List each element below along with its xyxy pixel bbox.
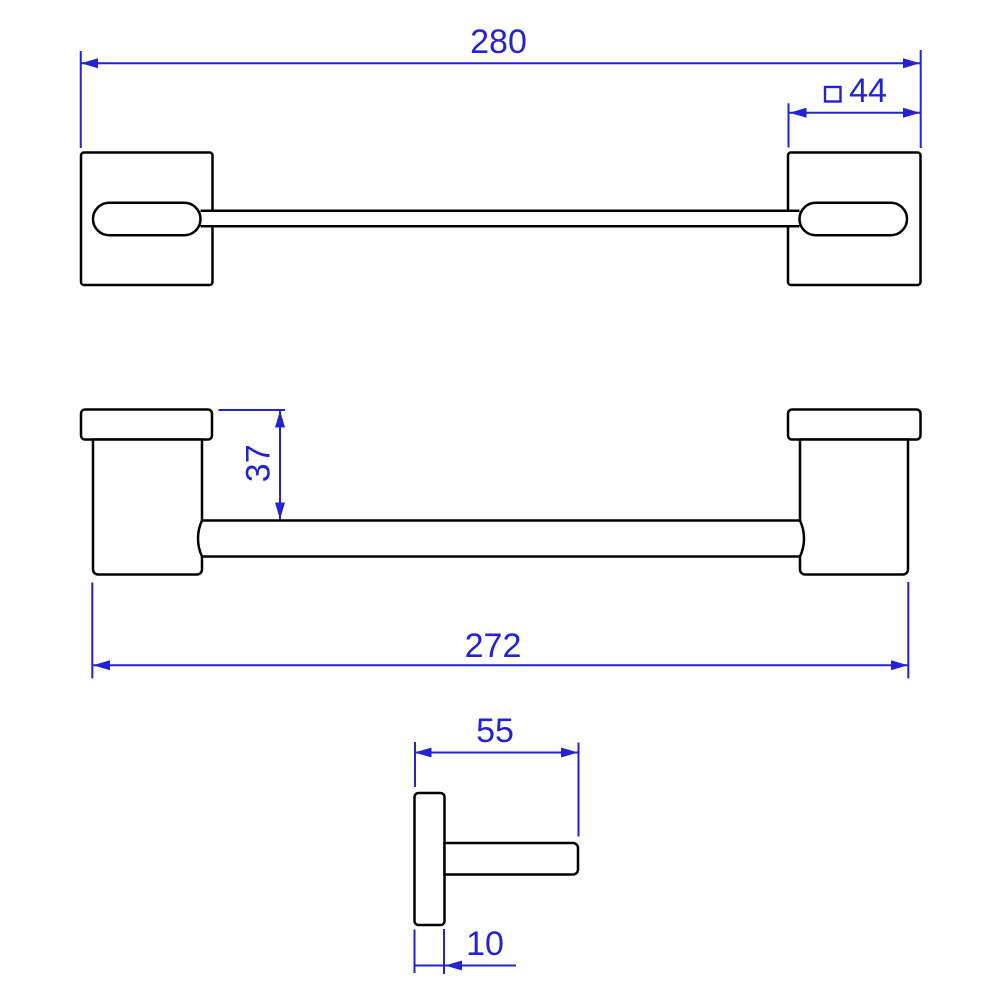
svg-text:272: 272 <box>465 627 522 665</box>
svg-text:37: 37 <box>239 444 277 482</box>
svg-text:10: 10 <box>466 925 504 963</box>
svg-text:280: 280 <box>470 23 527 61</box>
svg-text:44: 44 <box>849 72 887 110</box>
svg-text:55: 55 <box>476 712 514 750</box>
